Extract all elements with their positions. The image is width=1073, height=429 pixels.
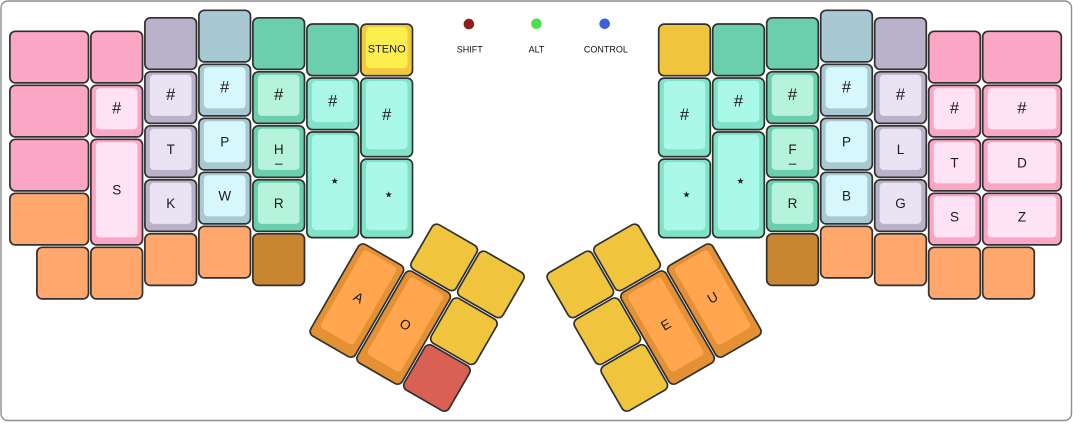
svg-text:B: B xyxy=(842,189,851,204)
svg-text:#: # xyxy=(328,92,338,110)
svg-text:Z: Z xyxy=(1018,210,1026,225)
svg-text:#: # xyxy=(842,79,852,97)
svg-text:S: S xyxy=(950,210,959,225)
svg-text:#: # xyxy=(112,100,122,118)
svg-text:ALT: ALT xyxy=(529,45,545,55)
svg-text:#: # xyxy=(950,100,960,118)
svg-text:R: R xyxy=(788,196,798,211)
svg-text:#: # xyxy=(788,86,798,104)
svg-text:P: P xyxy=(842,135,851,150)
svg-text:#: # xyxy=(1017,100,1027,118)
svg-text:R: R xyxy=(274,196,284,211)
svg-text:#: # xyxy=(382,106,392,124)
svg-text:T: T xyxy=(950,156,958,171)
svg-text:#: # xyxy=(680,106,690,124)
svg-text:#: # xyxy=(896,86,906,104)
svg-text:SHIFT: SHIFT xyxy=(457,45,484,55)
svg-text:STENO: STENO xyxy=(368,44,406,56)
svg-text:D: D xyxy=(1017,156,1027,171)
svg-text:#: # xyxy=(274,86,284,104)
svg-text:#: # xyxy=(166,86,176,104)
svg-text:T: T xyxy=(167,142,175,157)
svg-text:K: K xyxy=(166,196,175,211)
svg-text:S: S xyxy=(112,183,121,198)
svg-text:H: H xyxy=(274,142,284,157)
svg-text:#: # xyxy=(220,79,230,97)
svg-text:CONTROL: CONTROL xyxy=(584,45,628,55)
svg-text:#: # xyxy=(734,92,744,110)
svg-text:G: G xyxy=(895,196,906,211)
svg-text:P: P xyxy=(220,135,229,150)
svg-text:F: F xyxy=(788,142,796,157)
svg-text:W: W xyxy=(218,189,231,204)
svg-text:L: L xyxy=(897,142,905,157)
